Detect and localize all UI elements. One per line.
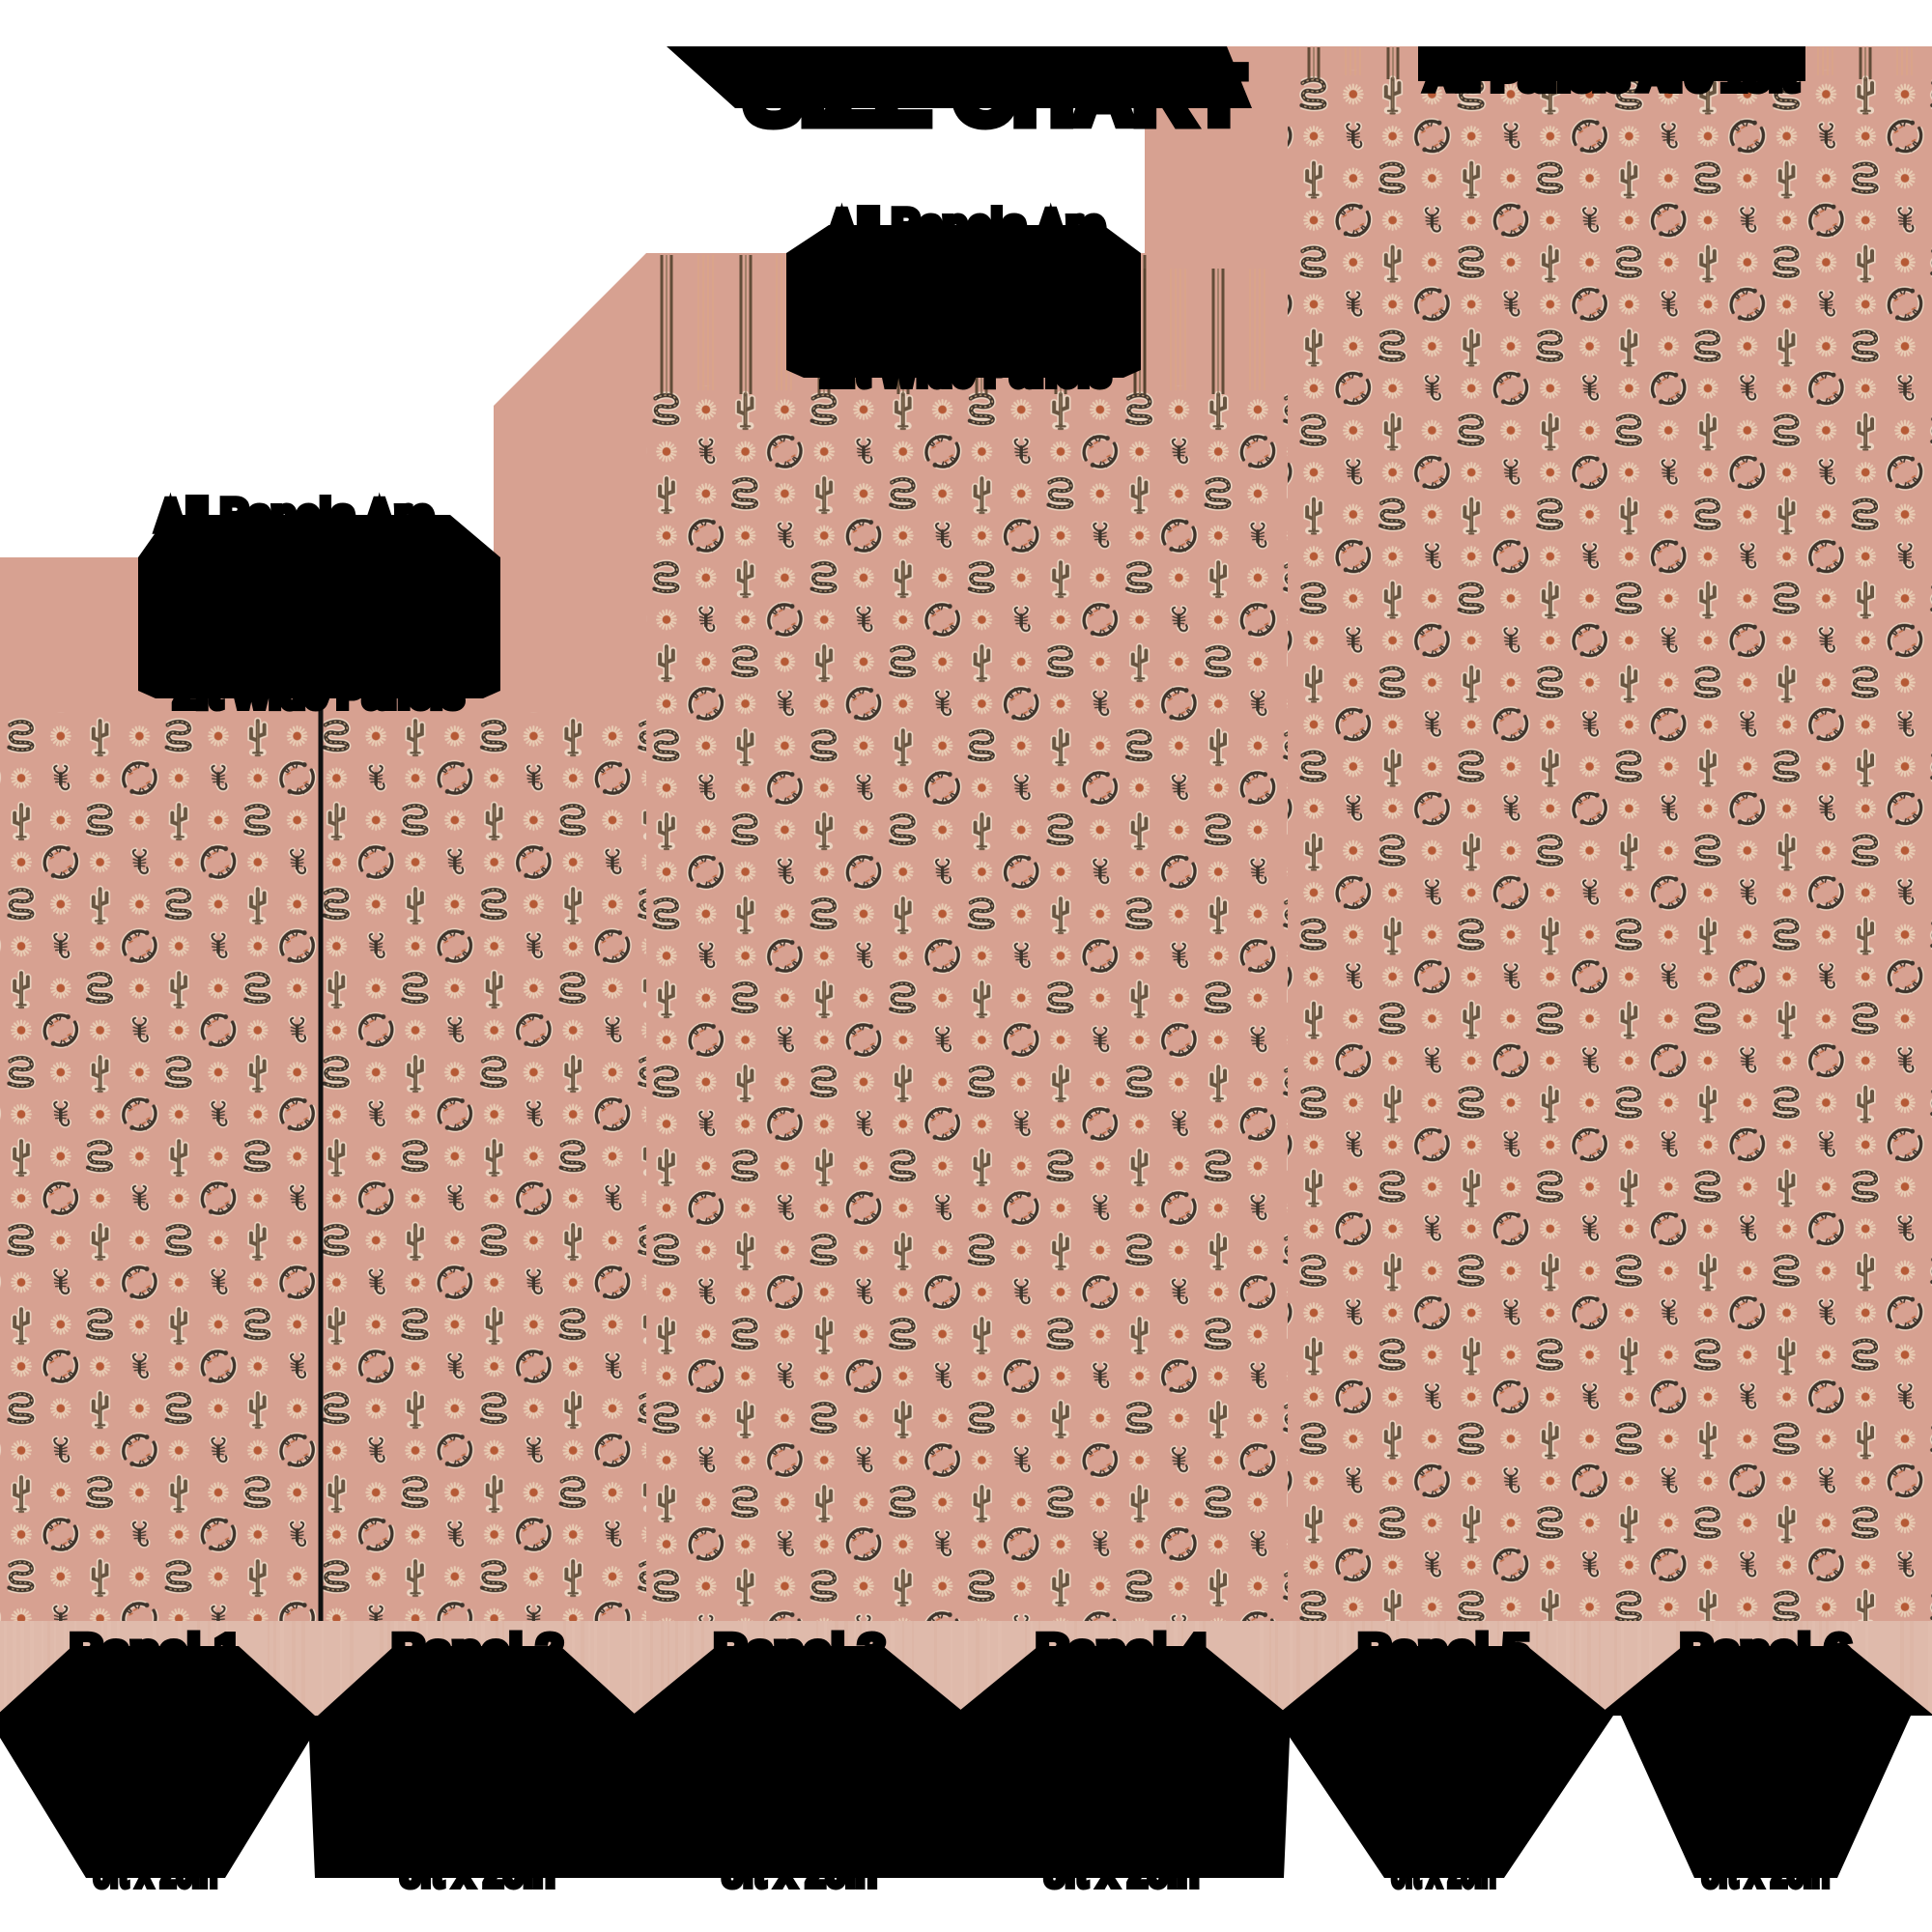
svg-text:8ft x 26in: 8ft x 26in [1392,1850,1496,1895]
svg-text:8ft x 26in: 8ft x 26in [1044,1850,1199,1895]
svg-text:8ft x 26in: 8ft x 26in [1702,1850,1830,1895]
svg-text:SIZE CHART: SIZE CHART [746,50,1244,141]
svg-text:8ft x 26in: 8ft x 26in [400,1850,554,1895]
svg-text:2ft Wide Panels: 2ft Wide Panels [821,345,1111,396]
svg-text:2ft Wide Panels: 2ft Wide Panels [174,669,464,717]
svg-text:8ft x 26in: 8ft x 26in [94,1850,217,1895]
svg-text:8ft x 26in: 8ft x 26in [723,1850,877,1895]
svg-text:All Panels Are 13ft: All Panels Are 13ft [1426,53,1798,99]
